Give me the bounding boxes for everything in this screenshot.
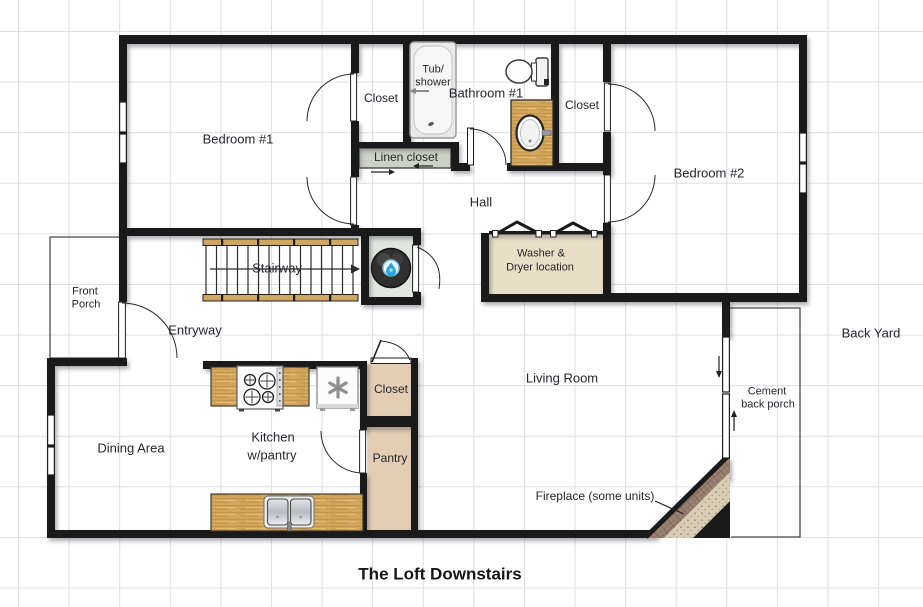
sliding-door	[716, 337, 737, 458]
room-label-closet-top-left: Closet	[364, 92, 398, 104]
label-washer-line2: Dryer location	[506, 263, 574, 274]
label-kitchen-line2: w/pantry	[247, 449, 296, 462]
label-kitchen-line1: Kitchen	[251, 431, 294, 444]
counter-right	[283, 367, 309, 406]
room-label-stairway: Stairway	[252, 262, 302, 275]
label-cement-line1: Cement	[748, 387, 787, 398]
fireplace-icon	[646, 456, 730, 538]
room-label-hall: Hall	[470, 196, 492, 209]
pantry-fill	[367, 427, 411, 530]
stove-icon	[237, 366, 283, 412]
kitchen-sink-icon	[264, 496, 314, 531]
room-label-dining-area: Dining Area	[97, 442, 164, 455]
label-back-yard: Back Yard	[842, 327, 901, 340]
room-label-living-room: Living Room	[526, 372, 598, 385]
label-tub-line2: shower	[415, 78, 450, 89]
room-label-bedroom2: Bedroom #2	[674, 167, 745, 180]
plan-title: The Loft Downstairs	[358, 566, 521, 583]
bathroom-door	[468, 128, 507, 165]
room-label-bedroom1: Bedroom #1	[203, 133, 274, 146]
label-cement-line2: back porch	[741, 400, 795, 411]
room-label-pantry: Pantry	[373, 452, 408, 464]
back-porch-outline	[727, 308, 800, 537]
bedroom1-closet-door	[307, 73, 357, 121]
pantry-door	[321, 430, 366, 473]
bedroom2-closet-door	[604, 83, 655, 131]
room-label-entryway: Entryway	[168, 324, 221, 337]
water-heater-closet-door	[413, 245, 440, 292]
room-label-closet-top-right: Closet	[565, 99, 599, 111]
bedroom1-window	[120, 102, 127, 163]
label-front-porch-line1: Front	[72, 287, 98, 298]
room-label-closet-kitchen: Closet	[374, 383, 408, 395]
counter-left	[211, 367, 238, 406]
front-porch-outline	[50, 237, 125, 358]
label-fireplace: Fireplace (some units)	[536, 490, 655, 502]
room-label-linen-closet: Linen closet	[374, 151, 438, 163]
water-heater-icon	[372, 249, 411, 288]
toilet-icon	[506, 58, 549, 86]
floorplan-canvas: Bedroom #1 Closet Tub/ shower Bathroom #…	[0, 0, 923, 607]
dining-window	[48, 415, 55, 475]
kitchen-closet-door	[371, 340, 411, 364]
sink-vanity-icon	[511, 100, 553, 166]
label-tub-line1: Tub/	[422, 65, 444, 76]
porch-outlines	[50, 237, 800, 537]
label-front-porch-line2: Porch	[72, 300, 101, 311]
label-washer-line1: Washer &	[517, 249, 565, 260]
bedroom1-entry-door	[307, 177, 357, 225]
bedroom2-entry-door	[604, 175, 655, 223]
room-label-bathroom1: Bathroom #1	[449, 87, 523, 100]
refrigerator-icon	[317, 367, 358, 411]
stair-direction-arrow	[351, 265, 360, 274]
